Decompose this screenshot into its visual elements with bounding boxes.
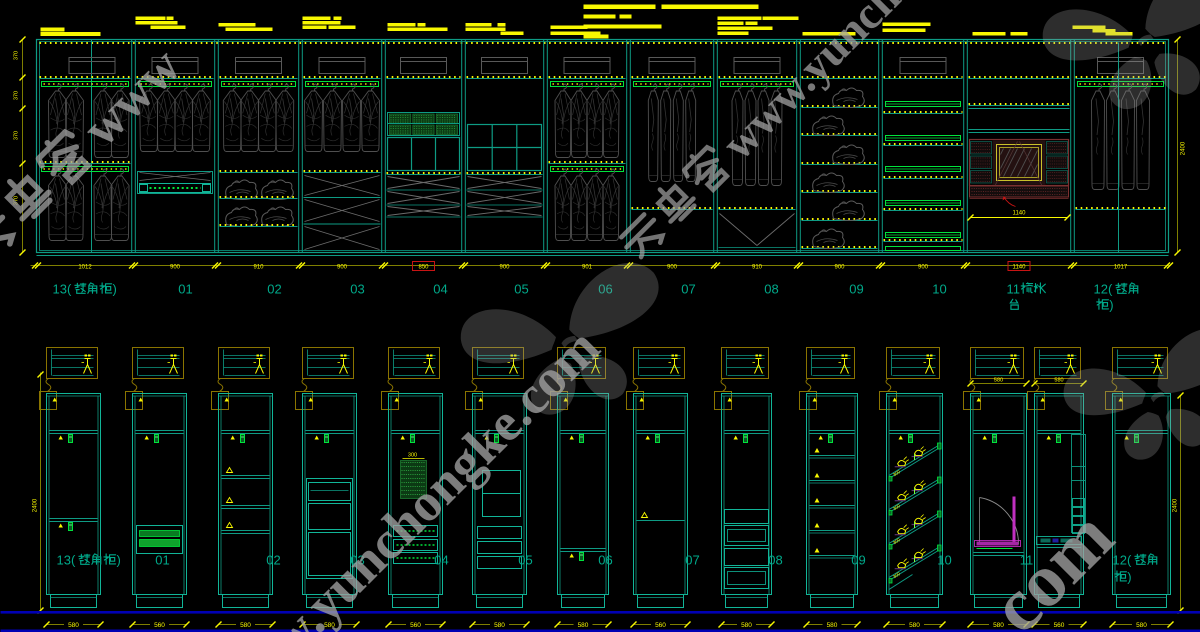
- svg-text:13(: 13(: [53, 282, 72, 297]
- svg-text:08: 08: [764, 282, 778, 297]
- svg-text:560: 560: [410, 622, 421, 629]
- svg-text:370: 370: [14, 91, 20, 100]
- svg-text:08: 08: [768, 553, 782, 568]
- svg-text:1017: 1017: [1114, 265, 1128, 271]
- svg-text:): ): [117, 553, 121, 568]
- svg-text:): ): [113, 282, 117, 297]
- svg-text:580: 580: [68, 622, 79, 629]
- svg-text:10: 10: [937, 553, 951, 568]
- svg-text:900: 900: [337, 265, 348, 271]
- svg-text:1012: 1012: [78, 265, 92, 271]
- svg-text:06: 06: [598, 553, 612, 568]
- svg-text:): ): [1109, 298, 1113, 313]
- svg-text:580: 580: [909, 622, 920, 629]
- svg-text:900: 900: [918, 265, 929, 271]
- svg-text:900: 900: [499, 265, 510, 271]
- svg-text:580: 580: [494, 622, 505, 629]
- svg-text:02: 02: [266, 553, 280, 568]
- svg-text:560: 560: [655, 622, 666, 629]
- svg-text:2400: 2400: [1181, 141, 1187, 155]
- svg-text:850: 850: [418, 265, 429, 271]
- svg-text:370: 370: [14, 131, 20, 140]
- svg-text:1140: 1140: [1013, 265, 1027, 271]
- svg-text:370: 370: [14, 51, 20, 60]
- svg-text:13(: 13(: [57, 553, 76, 568]
- svg-text:03: 03: [350, 282, 364, 297]
- svg-text:900: 900: [170, 265, 181, 271]
- svg-text:09: 09: [849, 282, 863, 297]
- svg-text:580: 580: [578, 622, 589, 629]
- svg-text:09: 09: [851, 553, 865, 568]
- svg-text:05: 05: [514, 282, 528, 297]
- svg-text:2400: 2400: [33, 498, 39, 512]
- svg-text:2400: 2400: [1173, 498, 1179, 512]
- svg-text:580: 580: [741, 622, 752, 629]
- svg-text:580: 580: [1054, 378, 1063, 384]
- svg-text:01: 01: [178, 282, 192, 297]
- svg-text:04: 04: [433, 282, 447, 297]
- svg-text:910: 910: [752, 265, 763, 271]
- svg-text:11: 11: [1007, 282, 1021, 297]
- svg-text:07: 07: [685, 553, 699, 568]
- svg-text:580: 580: [827, 622, 838, 629]
- svg-text:10: 10: [932, 282, 946, 297]
- svg-text:02: 02: [267, 282, 281, 297]
- svg-text:901: 901: [582, 265, 593, 271]
- svg-text:580: 580: [240, 622, 251, 629]
- svg-text:07: 07: [681, 282, 695, 297]
- svg-text:04: 04: [434, 553, 448, 568]
- svg-text:580: 580: [1136, 622, 1147, 629]
- svg-text:560: 560: [154, 622, 165, 629]
- svg-text:05: 05: [518, 553, 532, 568]
- svg-text:900: 900: [834, 265, 845, 271]
- svg-text:910: 910: [253, 265, 264, 271]
- svg-text:): ): [1127, 570, 1131, 585]
- svg-text:300: 300: [408, 453, 417, 459]
- svg-text:900: 900: [667, 265, 678, 271]
- svg-text:12(: 12(: [1094, 282, 1113, 297]
- svg-text:1140: 1140: [1013, 211, 1027, 217]
- svg-text:01: 01: [155, 553, 169, 568]
- svg-text:580: 580: [994, 378, 1003, 384]
